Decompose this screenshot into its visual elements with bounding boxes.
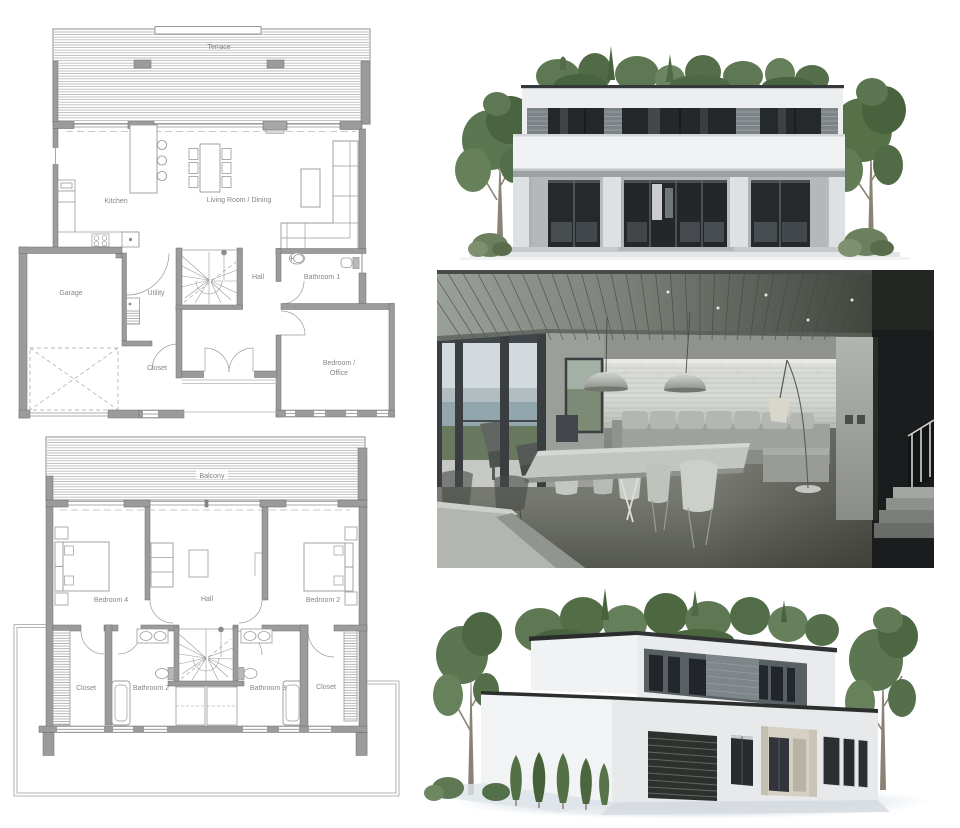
svg-text:Office: Office: [330, 370, 348, 377]
svg-text:Closet: Closet: [147, 365, 167, 372]
svg-text:Bedroom 4: Bedroom 4: [94, 597, 128, 604]
svg-text:Kitchen: Kitchen: [104, 198, 127, 205]
svg-text:Hall: Hall: [252, 274, 265, 281]
svg-text:Bathroom 2: Bathroom 2: [133, 685, 169, 692]
svg-text:Bathroom 1: Bathroom 1: [304, 274, 340, 281]
svg-text:Closet: Closet: [316, 684, 336, 691]
svg-text:Terrace: Terrace: [207, 44, 230, 51]
svg-text:Utility: Utility: [147, 290, 165, 297]
svg-text:Garage: Garage: [59, 290, 82, 297]
svg-text:Closet: Closet: [76, 685, 96, 692]
svg-text:Balcony: Balcony: [200, 473, 225, 480]
svg-text:Bathroom 3: Bathroom 3: [250, 685, 286, 692]
svg-text:Bedroom 2: Bedroom 2: [306, 597, 340, 604]
svg-text:Bedroom /: Bedroom /: [323, 360, 355, 367]
svg-text:Hall: Hall: [201, 596, 214, 603]
svg-text:Living Room / Dining: Living Room / Dining: [207, 197, 272, 204]
